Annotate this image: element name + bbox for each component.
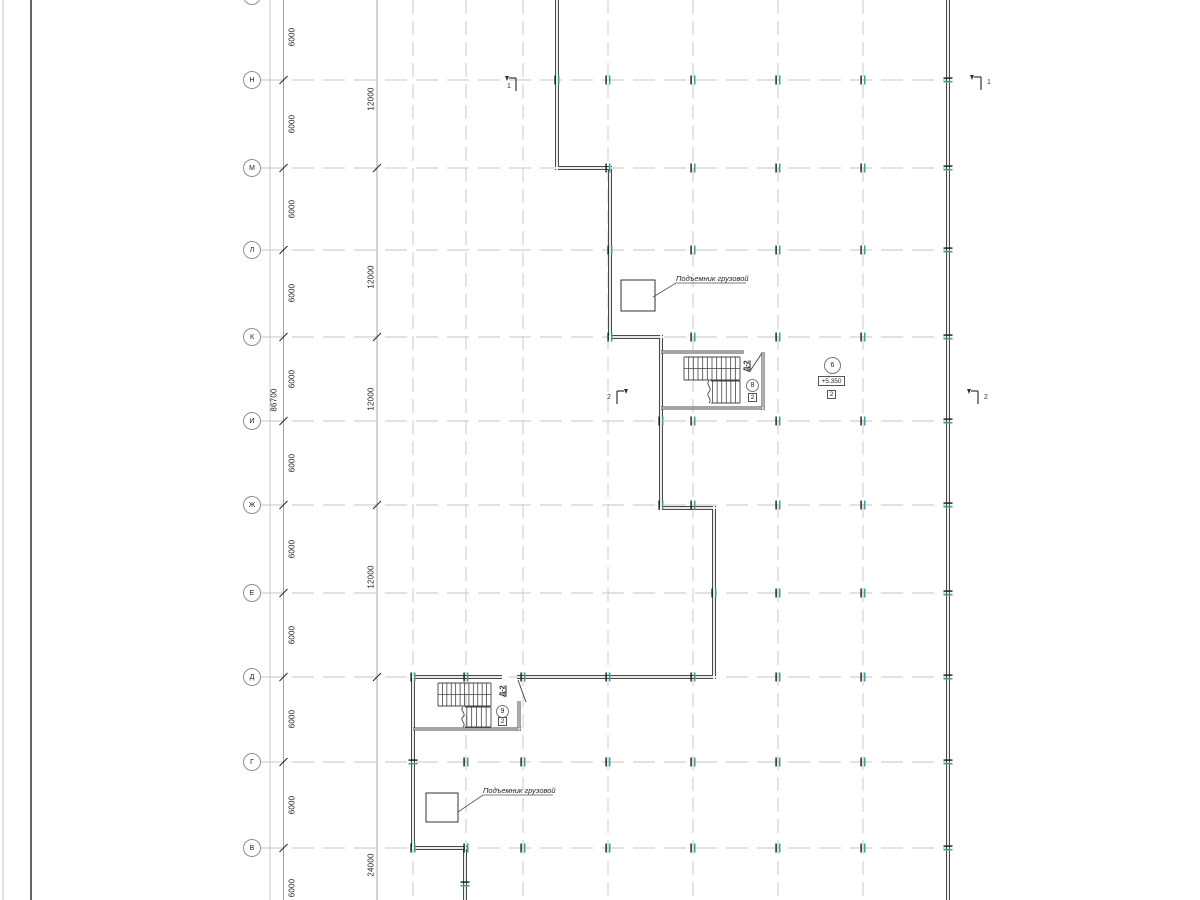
axis-row-label: М bbox=[249, 165, 255, 172]
column-tick bbox=[694, 501, 696, 510]
stair-break-line bbox=[708, 381, 710, 403]
column-tick bbox=[662, 417, 664, 426]
dimension-total: 86700 bbox=[270, 388, 279, 411]
column-tick bbox=[605, 164, 606, 173]
column-tick bbox=[864, 76, 866, 85]
dimension-label-6000: 6000 bbox=[288, 796, 297, 815]
column-tick bbox=[605, 76, 606, 85]
axis-row-circle: Ж bbox=[243, 496, 261, 514]
column-tick bbox=[944, 674, 953, 675]
column-tick bbox=[611, 246, 613, 255]
column-tick bbox=[944, 678, 953, 680]
dimension-label-6000: 6000 bbox=[288, 284, 297, 303]
column-tick bbox=[775, 758, 776, 767]
column-tick bbox=[690, 246, 691, 255]
stair-lower-box: 2 bbox=[498, 717, 507, 726]
axis-row-circle: Н bbox=[243, 71, 261, 89]
column-tick bbox=[607, 246, 608, 255]
section-2-right-mark-arrow bbox=[967, 389, 971, 394]
column-tick bbox=[944, 502, 953, 503]
dimension-label-6000: 6000 bbox=[288, 115, 297, 134]
dimension-label-6000: 6000 bbox=[288, 879, 297, 898]
column-tick bbox=[609, 76, 611, 85]
column-tick bbox=[467, 758, 469, 767]
axis-row-circle: М bbox=[243, 159, 261, 177]
column-tick bbox=[690, 844, 691, 853]
column-tick bbox=[605, 758, 606, 767]
column-tick bbox=[860, 246, 861, 255]
column-tick bbox=[605, 844, 606, 853]
column-tick bbox=[524, 758, 526, 767]
column-tick bbox=[467, 673, 469, 682]
column-tick bbox=[779, 333, 781, 342]
column-tick bbox=[711, 589, 712, 598]
door-leaf-line bbox=[518, 680, 526, 702]
section-2-right-number: 2 bbox=[984, 394, 988, 401]
column-tick bbox=[607, 333, 608, 342]
axis-row-label: В bbox=[250, 845, 255, 852]
column-tick bbox=[410, 844, 411, 853]
column-tick bbox=[463, 758, 464, 767]
section-1-left-mark-arrow bbox=[505, 76, 509, 81]
column-tick bbox=[864, 758, 866, 767]
column-tick bbox=[694, 417, 696, 426]
column-tick bbox=[409, 763, 418, 765]
column-tick bbox=[779, 76, 781, 85]
column-tick bbox=[658, 501, 659, 510]
column-tick bbox=[694, 758, 696, 767]
axis-row-circle: Е bbox=[243, 584, 261, 602]
section-2-left-mark-arrow bbox=[624, 389, 628, 394]
dimension-label-12000: 12000 bbox=[367, 565, 376, 588]
axis-row-circle: В bbox=[243, 839, 261, 857]
stair-break-line bbox=[462, 707, 464, 727]
column-tick bbox=[779, 589, 781, 598]
column-tick bbox=[944, 849, 953, 851]
axis-row-circle: Л bbox=[243, 241, 261, 259]
column-tick bbox=[860, 76, 861, 85]
axis-row-circle: Д bbox=[243, 668, 261, 686]
section-1-right-mark-arrow bbox=[970, 75, 974, 80]
dimension-label-6000: 6000 bbox=[288, 710, 297, 729]
column-tick bbox=[944, 338, 953, 340]
column-tick bbox=[520, 844, 521, 853]
room-box: 2 bbox=[827, 390, 836, 399]
column-tick bbox=[690, 758, 691, 767]
column-tick bbox=[860, 589, 861, 598]
column-tick bbox=[779, 501, 781, 510]
hoist-shaft-outline bbox=[426, 793, 458, 822]
room-node-circle: 6 bbox=[824, 357, 841, 374]
column-tick bbox=[414, 673, 416, 682]
column-tick bbox=[690, 501, 691, 510]
column-tick bbox=[944, 334, 953, 335]
column-tick bbox=[864, 246, 866, 255]
axis-row-label: Н bbox=[249, 77, 254, 84]
column-tick bbox=[558, 76, 560, 85]
column-tick bbox=[860, 333, 861, 342]
column-tick bbox=[409, 759, 418, 760]
column-tick bbox=[944, 165, 953, 166]
column-tick bbox=[864, 673, 866, 682]
column-tick bbox=[775, 333, 776, 342]
column-tick bbox=[410, 673, 411, 682]
column-tick bbox=[520, 758, 521, 767]
column-tick bbox=[694, 164, 696, 173]
hoist-upper-label: Подъемник грузовой bbox=[676, 274, 749, 283]
column-tick bbox=[461, 881, 470, 882]
axis-row-label: Д bbox=[250, 674, 255, 681]
column-tick bbox=[463, 844, 464, 853]
column-tick bbox=[944, 418, 953, 419]
column-tick bbox=[779, 758, 781, 767]
column-tick bbox=[779, 417, 781, 426]
column-tick bbox=[944, 506, 953, 508]
stair-upper-box: 2 bbox=[748, 393, 757, 402]
column-tick bbox=[690, 164, 691, 173]
stair-lower-name: Д-2 bbox=[500, 685, 507, 696]
dimension-label-12000: 12000 bbox=[367, 387, 376, 410]
floor-plan-sheet: 86700 24000 Подъемник грузовой Подъемник… bbox=[0, 0, 1200, 900]
column-tick bbox=[414, 844, 416, 853]
column-tick bbox=[775, 673, 776, 682]
column-tick bbox=[779, 246, 781, 255]
column-tick bbox=[944, 247, 953, 248]
dimension-24000: 24000 bbox=[367, 853, 376, 876]
stair-upper-node-circle: 8 bbox=[746, 379, 759, 392]
column-tick bbox=[554, 76, 555, 85]
hoist-lower-label: Подъемник грузовой bbox=[483, 786, 556, 795]
column-tick bbox=[944, 77, 953, 78]
column-tick bbox=[694, 844, 696, 853]
axis-row-label: Ж bbox=[249, 502, 255, 509]
column-tick bbox=[775, 76, 776, 85]
column-tick bbox=[609, 164, 611, 173]
column-tick bbox=[864, 164, 866, 173]
column-tick bbox=[775, 164, 776, 173]
column-tick bbox=[864, 417, 866, 426]
dimension-label-12000: 12000 bbox=[367, 87, 376, 110]
dimension-label-6000: 6000 bbox=[288, 370, 297, 389]
column-tick bbox=[779, 844, 781, 853]
column-tick bbox=[944, 763, 953, 765]
column-tick bbox=[690, 417, 691, 426]
column-tick bbox=[775, 246, 776, 255]
column-tick bbox=[860, 673, 861, 682]
column-tick bbox=[864, 333, 866, 342]
column-tick bbox=[611, 333, 613, 342]
hoist-shaft-outline bbox=[621, 280, 655, 311]
door-leaf-line bbox=[750, 353, 762, 371]
room-elevation-box: +5.350 bbox=[818, 376, 845, 386]
section-1-left-number: 1 bbox=[507, 83, 511, 90]
column-tick bbox=[944, 251, 953, 253]
column-tick bbox=[463, 673, 464, 682]
dimension-label-6000: 6000 bbox=[288, 626, 297, 645]
column-tick bbox=[609, 673, 611, 682]
axis-row-circle: Г bbox=[243, 753, 261, 771]
column-tick bbox=[715, 589, 717, 598]
annotation-leader-line bbox=[653, 283, 746, 297]
column-tick bbox=[694, 246, 696, 255]
column-tick bbox=[694, 673, 696, 682]
axis-row-label: Е bbox=[250, 590, 255, 597]
axis-row-label: И bbox=[249, 418, 254, 425]
column-tick bbox=[690, 333, 691, 342]
axis-row-label: Г bbox=[250, 759, 254, 766]
dimension-label-12000: 12000 bbox=[367, 265, 376, 288]
column-tick bbox=[944, 590, 953, 591]
column-tick bbox=[609, 844, 611, 853]
column-tick bbox=[775, 501, 776, 510]
plan-geometry-svg bbox=[0, 0, 1200, 900]
column-tick bbox=[864, 501, 866, 510]
axis-row-circle: И bbox=[243, 412, 261, 430]
axis-row-label: К bbox=[250, 334, 254, 341]
dimension-label-6000: 6000 bbox=[288, 454, 297, 473]
column-tick bbox=[690, 673, 691, 682]
column-tick bbox=[860, 758, 861, 767]
column-tick bbox=[944, 759, 953, 760]
column-tick bbox=[694, 76, 696, 85]
column-tick bbox=[690, 76, 691, 85]
column-tick bbox=[864, 589, 866, 598]
dimension-label-6000: 6000 bbox=[288, 200, 297, 219]
column-tick bbox=[860, 501, 861, 510]
column-tick bbox=[860, 844, 861, 853]
column-tick bbox=[662, 501, 664, 510]
annotation-leader-line bbox=[458, 795, 553, 812]
stair-upper-name: Д-2 bbox=[744, 360, 751, 371]
column-tick bbox=[860, 164, 861, 173]
column-tick bbox=[779, 164, 781, 173]
column-tick bbox=[520, 673, 521, 682]
column-tick bbox=[524, 844, 526, 853]
column-tick bbox=[944, 422, 953, 424]
section-2-left-number: 2 bbox=[607, 394, 611, 401]
column-tick bbox=[860, 417, 861, 426]
dimension-label-6000: 6000 bbox=[288, 540, 297, 559]
column-tick bbox=[658, 417, 659, 426]
column-tick bbox=[944, 594, 953, 596]
column-tick bbox=[605, 673, 606, 682]
column-tick bbox=[775, 417, 776, 426]
column-tick bbox=[775, 844, 776, 853]
column-tick bbox=[461, 885, 470, 887]
column-tick bbox=[779, 673, 781, 682]
column-tick bbox=[609, 758, 611, 767]
axis-row-circle: К bbox=[243, 328, 261, 346]
column-tick bbox=[775, 589, 776, 598]
column-tick bbox=[944, 845, 953, 846]
column-tick bbox=[944, 169, 953, 171]
column-tick bbox=[524, 673, 526, 682]
column-tick bbox=[864, 844, 866, 853]
axis-row-label: Л bbox=[250, 247, 255, 254]
column-tick bbox=[467, 844, 469, 853]
column-tick bbox=[944, 81, 953, 83]
section-1-right-number: 1 bbox=[987, 79, 991, 86]
dimension-label-6000: 6000 bbox=[288, 28, 297, 47]
column-tick bbox=[694, 333, 696, 342]
